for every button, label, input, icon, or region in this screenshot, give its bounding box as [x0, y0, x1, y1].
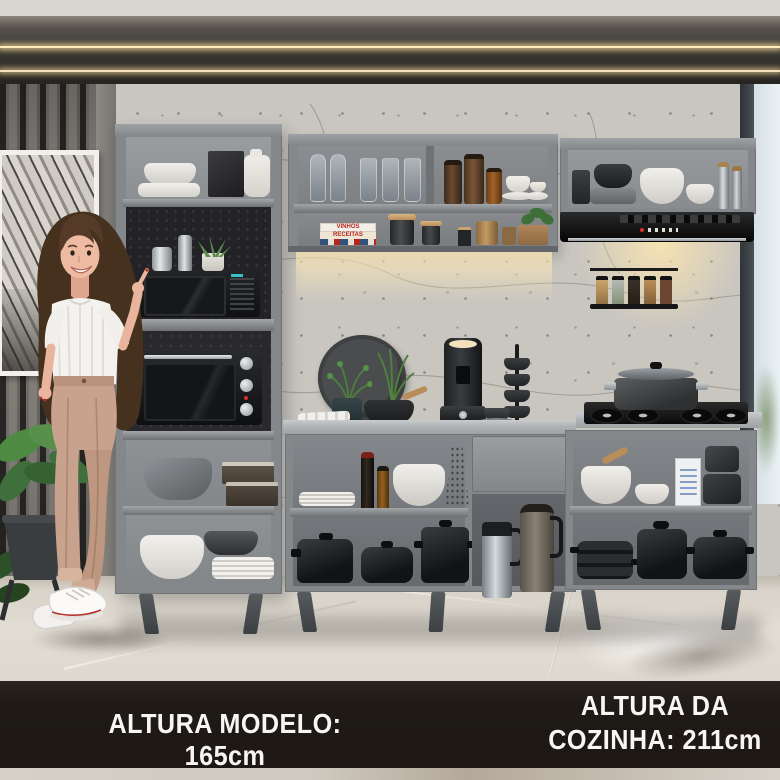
- trousers-hips: [51, 386, 117, 450]
- under-cabinet-led-glow: [296, 252, 552, 302]
- pot-handle: [414, 541, 423, 548]
- coffee-machine-glow-ring: [449, 340, 477, 348]
- left-forearm: [46, 348, 51, 386]
- product-box: [675, 458, 701, 506]
- pointing-finger: [139, 270, 147, 285]
- hood-red-light: [640, 228, 644, 232]
- brown-box: [226, 482, 278, 506]
- lidded-pot: [637, 529, 687, 579]
- glasses-compartment: [298, 146, 426, 204]
- oven-knob: [240, 403, 253, 416]
- coffee-machine-badge: [459, 411, 467, 419]
- plate-stack: [138, 183, 200, 197]
- hood-vents: [620, 215, 740, 223]
- wood-canister: [476, 221, 498, 245]
- white-jug: [244, 155, 270, 197]
- amber-jar: [486, 168, 502, 204]
- drawer: [472, 436, 570, 492]
- thermos-garrafa: [520, 504, 554, 592]
- dark-bottle: [361, 452, 374, 512]
- book-receitas: RECEITAS: [320, 232, 376, 239]
- oven-knob: [240, 357, 253, 370]
- stacked-cup: [504, 358, 530, 370]
- cabinet-top-board: [288, 134, 558, 145]
- white-bowl-stack: [640, 168, 684, 204]
- right-upper-shelf: [568, 150, 748, 208]
- middle-countertop: [283, 420, 576, 434]
- wood-lid: [420, 221, 442, 226]
- glass-jar-wood-lid: [390, 219, 414, 245]
- bowl: [144, 163, 196, 185]
- pepper-grinder: [718, 162, 729, 209]
- pepper-grinder: [732, 166, 742, 209]
- kitchen-height-line2: COZINHA: 211cm: [534, 723, 777, 757]
- black-canister: [703, 474, 741, 504]
- big-casserole: [693, 537, 747, 579]
- brown-box: [222, 462, 274, 484]
- amber-bottle: [377, 466, 389, 511]
- wood-lid: [388, 214, 416, 220]
- info-banner: ALTURA MODELO: 165cm ALTURA DA COZINHA: …: [0, 681, 780, 768]
- black-canister-box: [208, 151, 244, 197]
- small-black-jar: [458, 227, 471, 248]
- pan-handle: [570, 547, 579, 553]
- beer-glass: [330, 154, 346, 202]
- tumbler-glass: [382, 158, 399, 202]
- shelf-board: [294, 204, 552, 213]
- kitchen-height-line1: ALTURA DA: [534, 689, 777, 723]
- pestle-wood: [601, 446, 629, 465]
- white-bowl-stack: [530, 182, 546, 192]
- white-cup-and-saucer: [506, 176, 530, 192]
- burner: [714, 407, 748, 424]
- pantry-shelf: VINHOS RECEITAS: [298, 213, 548, 246]
- hood-indicator-lights: [648, 228, 678, 232]
- pot-handle: [745, 547, 754, 554]
- spice-rack: [590, 268, 678, 312]
- spice-rack-rail: [590, 268, 678, 271]
- stock-pot: [421, 527, 469, 583]
- range-hood: [560, 212, 754, 242]
- led-strip-1: [0, 46, 780, 48]
- white-bowl-stack: [635, 484, 669, 504]
- nail-polish: [145, 268, 148, 271]
- brown-jar: [464, 154, 484, 205]
- white-plate-stack: [212, 557, 274, 579]
- left-cabinet-top: [115, 124, 282, 136]
- book-colorful: [320, 239, 376, 245]
- kitchen-product-photo: VINHOS RECEITAS: [0, 0, 780, 780]
- cookbook-stack: VINHOS RECEITAS: [320, 223, 376, 245]
- cuff-right: [58, 568, 82, 581]
- sneaker-front: [49, 587, 106, 617]
- plant-wood-box: [518, 225, 548, 245]
- glass-jar-wood-lid: [422, 225, 440, 245]
- pot-handle: [686, 547, 695, 554]
- right-upper-cabinet: [560, 138, 756, 214]
- mortar-white: [581, 466, 631, 504]
- grey-plate-stack: [590, 188, 636, 204]
- pot-handle: [291, 549, 301, 557]
- white-serving-bowl: [393, 464, 445, 506]
- middle-upper-cabinet: VINHOS RECEITAS: [288, 134, 558, 252]
- pot-lid-knob: [319, 533, 333, 540]
- stacked-pans: [577, 541, 633, 579]
- cabinet-leg: [429, 592, 446, 632]
- mid-shelf-bottom: [293, 517, 465, 586]
- pot-lid-knob: [713, 530, 727, 537]
- ceiling-beam: [0, 16, 780, 84]
- tumbler-glass: [360, 158, 377, 202]
- thermos-handle: [550, 516, 563, 558]
- oven-knob: [240, 379, 253, 392]
- pot-handle: [696, 382, 708, 390]
- casserole-pot: [361, 547, 413, 583]
- black-canister: [705, 446, 739, 472]
- lid-knob: [650, 362, 662, 369]
- spice-rack-tray: [590, 304, 678, 309]
- coffee-machine: [444, 338, 482, 424]
- wood-block: [502, 227, 516, 245]
- microwave-display: [231, 274, 243, 277]
- stacked-cup: [504, 374, 530, 386]
- shelf-board: [290, 508, 468, 517]
- nail-polish: [40, 397, 43, 400]
- book-vinhos: VINHOS: [320, 223, 376, 232]
- pot-handle: [604, 382, 616, 390]
- bottom-floor-strip: [0, 768, 780, 780]
- stacked-cup: [504, 390, 530, 402]
- right-shelf-top: [573, 438, 749, 506]
- pot-lid-knob: [381, 541, 393, 548]
- white-bowl: [686, 184, 714, 204]
- glass-lid: [618, 368, 694, 380]
- succulent-leaves: [196, 231, 232, 257]
- right-base-cabinet: [565, 430, 757, 590]
- jars-compartment: [434, 146, 548, 204]
- dark-canister: [572, 170, 590, 204]
- cabinet-top-board: [560, 138, 756, 149]
- right-shelf-bottom: [573, 515, 749, 585]
- kitchen-height-label: ALTURA DA COZINHA: 211cm: [520, 689, 780, 757]
- tumbler-glass: [404, 158, 421, 202]
- left-shelf-dishes: [126, 137, 271, 199]
- oven-indicator-light: [244, 396, 248, 400]
- cabinet-divider: [426, 146, 434, 204]
- middle-base-cabinet: [285, 434, 576, 592]
- beer-glass: [310, 154, 326, 202]
- dark-metal-bowl: [204, 531, 258, 555]
- pressure-cooker: [297, 539, 353, 583]
- white-plate-stack: [299, 492, 355, 506]
- thermos-niche: [472, 494, 568, 586]
- coffee-machine-slot: [456, 366, 470, 384]
- shelf-board: [570, 506, 752, 515]
- model-height-label: ALTURA MODELO: 165cm: [68, 708, 383, 772]
- big-pot-on-stove: [614, 378, 698, 410]
- thermos-steel: [482, 522, 512, 598]
- pot-lid-knob: [439, 520, 452, 527]
- mid-shelf-top: [293, 440, 465, 508]
- grater: [445, 446, 469, 506]
- shelf-plant-leaves: [520, 205, 554, 227]
- nail-polish: [44, 399, 47, 402]
- model-woman: [0, 198, 200, 660]
- pot-lid-knob: [653, 521, 669, 529]
- hood-steel-edge: [568, 238, 746, 241]
- jug-spout: [250, 149, 262, 157]
- waist-button: [82, 379, 86, 383]
- saucer: [526, 192, 548, 200]
- brown-jar: [444, 160, 462, 205]
- led-strip-2: [0, 70, 780, 72]
- microwave-keypad: [230, 278, 254, 311]
- black-bowl-stack: [594, 164, 632, 188]
